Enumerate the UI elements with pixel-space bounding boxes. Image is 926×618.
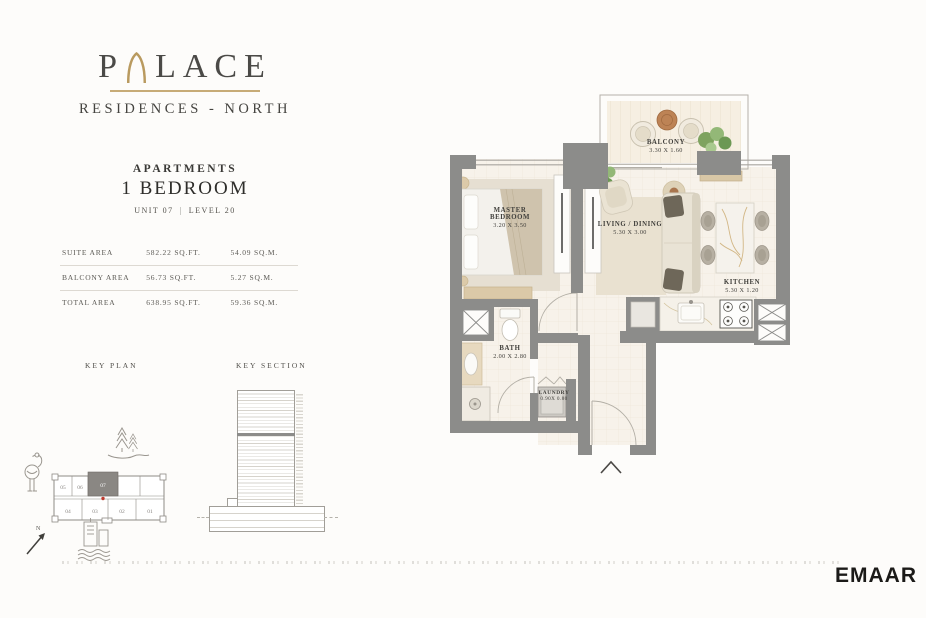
unit-category: APARTMENTS xyxy=(72,163,298,175)
sofa xyxy=(662,193,700,293)
highlighted-level-20 xyxy=(237,433,295,436)
unit-meta: UNIT 07|LEVEL 20 xyxy=(72,206,298,215)
key-section-diagram xyxy=(203,386,331,536)
unit-info: APARTMENTS 1 BEDROOM UNIT 07|LEVEL 20 xyxy=(72,163,298,215)
brochure-page: P LACE RESIDENCES - NORTH APARTMENTS 1 B… xyxy=(0,0,926,618)
entry-arrow-icon xyxy=(601,462,621,473)
section-dash-right xyxy=(324,517,338,518)
balcony-table xyxy=(657,110,677,130)
table-row: BALCONY AREA 56.73 SQ.FT. 5.27 SQ.M. xyxy=(60,265,298,290)
fridge xyxy=(631,302,655,327)
room-label-bath: BATH 2.00 X 2.80 xyxy=(466,345,554,360)
unit-label: 02 xyxy=(119,509,125,515)
floor-number-ticks xyxy=(296,392,303,504)
stove-icon xyxy=(720,300,752,328)
tower-elevation xyxy=(237,390,295,508)
emaar-logo: EMAAR xyxy=(835,564,917,588)
wardrobe xyxy=(554,175,570,273)
area-label: SUITE AREA xyxy=(62,248,146,257)
key-section-title: KEY SECTION xyxy=(236,361,307,370)
flamingo-icon xyxy=(25,453,42,491)
north-arrow-icon: N xyxy=(27,526,45,554)
podium-base xyxy=(209,506,325,532)
north-label: N xyxy=(36,526,41,532)
unit-label: 03 xyxy=(92,509,98,515)
area-label: BALCONY AREA xyxy=(62,273,146,282)
unit-label-highlighted: 07 xyxy=(100,483,106,489)
console-dresser xyxy=(464,287,532,299)
area-label: TOTAL AREA xyxy=(62,298,146,307)
shaft-icon xyxy=(754,299,790,345)
palace-wordmark: P LACE xyxy=(72,50,298,84)
toilet-icon xyxy=(500,309,520,341)
location-dot xyxy=(101,497,104,500)
area-sqm: 59.36 SQ.M. xyxy=(230,298,296,307)
brand-subtitle: RESIDENCES - NORTH xyxy=(72,101,298,118)
unit-label: 05 xyxy=(60,485,66,491)
unit-label: 01 xyxy=(147,509,153,515)
room-label-kitchen: KITCHEN 5.30 X 1.20 xyxy=(694,279,790,294)
brand-logo: P LACE RESIDENCES - NORTH xyxy=(72,50,298,118)
bed xyxy=(456,189,542,275)
unit-label: 06 xyxy=(77,485,83,491)
city-waterfront-icon xyxy=(78,518,110,561)
key-plan-title: KEY PLAN xyxy=(85,361,138,370)
table-row: SUITE AREA 582.22 SQ.FT. 54.09 SQ.M. xyxy=(60,241,298,265)
sink xyxy=(678,300,704,323)
room-label-balcony: BALCONY 3.30 X 1.60 xyxy=(608,139,724,154)
unit-number: UNIT 07 xyxy=(134,206,173,215)
trees-icon xyxy=(108,428,149,458)
area-sqft: 56.73 SQ.FT. xyxy=(146,273,230,282)
unit-level: LEVEL 20 xyxy=(189,206,236,215)
unit-type: 1 BEDROOM xyxy=(72,178,298,200)
table-row: TOTAL AREA 638.95 SQ.FT. 59.36 SQ.M. xyxy=(60,290,298,315)
meta-separator: | xyxy=(180,206,183,215)
wordmark-right: LACE xyxy=(155,50,272,84)
shaft-icon xyxy=(458,305,494,341)
shower xyxy=(460,387,490,421)
gold-divider xyxy=(110,90,260,92)
room-label-laundry: LAUNDRY 0.90X 0.80 xyxy=(532,390,576,402)
dining-table xyxy=(716,203,754,273)
wordmark-left: P xyxy=(98,50,124,84)
room-label-living-dining: LIVING / DINING 5.30 X 3.00 xyxy=(576,221,684,236)
room-label-master-bedroom: MASTER BEDROOM 3.20 X 3.50 xyxy=(480,207,540,229)
disclaimer-line xyxy=(62,561,844,564)
arch-icon xyxy=(125,52,148,83)
key-plan-diagram: 05 06 07 04 03 02 01 N xyxy=(18,418,188,563)
area-sqft: 582.22 SQ.FT. xyxy=(146,248,230,257)
building-footprint: 05 06 07 04 03 02 01 xyxy=(52,472,166,523)
floor-plan: BALCONY 3.30 X 1.60 MASTER BEDROOM 3.20 … xyxy=(450,93,790,480)
area-sqft: 638.95 SQ.FT. xyxy=(146,298,230,307)
area-table: SUITE AREA 582.22 SQ.FT. 54.09 SQ.M. BAL… xyxy=(60,241,298,315)
area-sqm: 54.09 SQ.M. xyxy=(230,248,296,257)
section-dash-left xyxy=(197,517,209,518)
unit-label: 04 xyxy=(65,509,71,515)
area-sqm: 5.27 SQ.M. xyxy=(230,273,296,282)
